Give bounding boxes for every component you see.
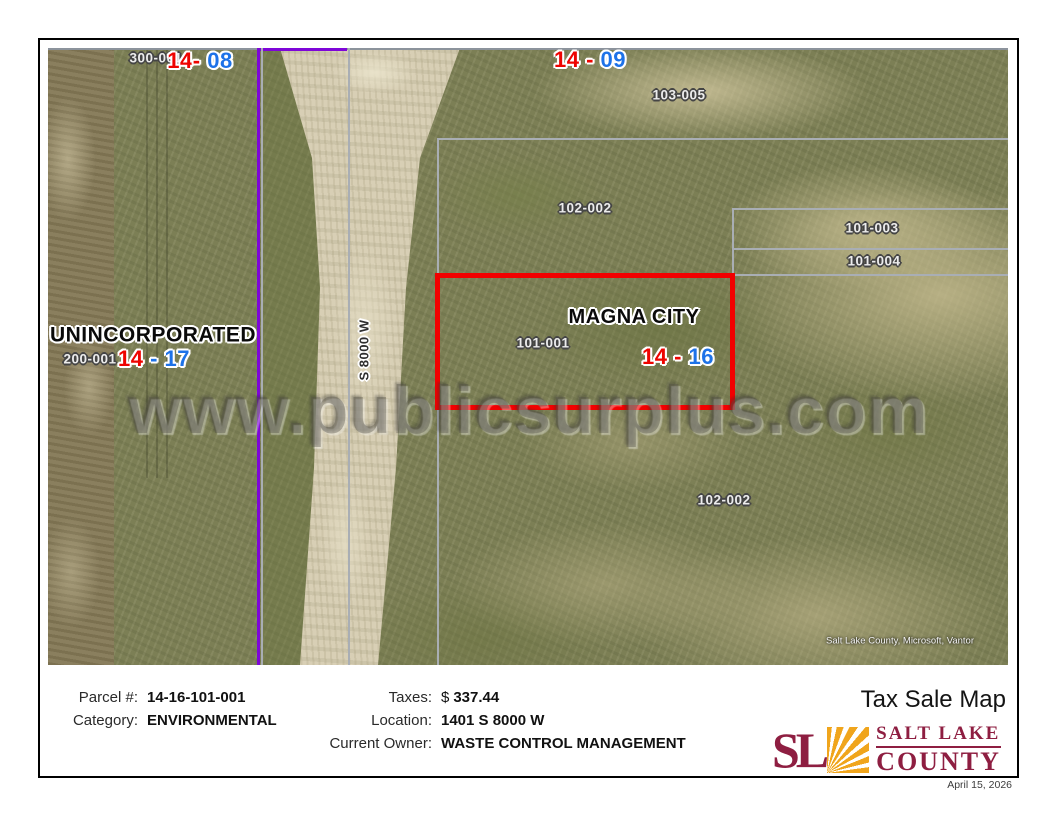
- location-field-value: 1401 S 8000 W: [441, 712, 544, 729]
- location-field: Location: 1401 S 8000 W: [320, 712, 544, 729]
- taxes-field: Taxes: $ 337.44: [320, 689, 499, 706]
- parcel-line: [732, 274, 1008, 276]
- section-dash: -: [193, 48, 201, 73]
- parcel-label: 102-002: [558, 201, 611, 215]
- purple-boundary-line: [257, 48, 260, 665]
- section-number: 17: [165, 346, 190, 371]
- parcel-label: 101-004: [847, 254, 900, 268]
- logo-name-line1: SALT LAKE: [876, 724, 1001, 748]
- category-field-value: ENVIRONMENTAL: [147, 712, 277, 729]
- category-field: Category: ENVIRONMENTAL: [58, 712, 277, 729]
- section-number: 09: [601, 48, 626, 72]
- section-dash: -: [674, 344, 682, 369]
- owner-field-label: Current Owner:: [320, 735, 432, 752]
- print-date: April 15, 2026: [806, 779, 1012, 791]
- section-label: 14 - 09: [554, 49, 626, 71]
- section-number: 14: [554, 48, 579, 72]
- parcel-field-value: 14-16-101-001: [147, 689, 245, 706]
- category-field-label: Category:: [58, 712, 138, 729]
- parcel-line: [261, 48, 263, 665]
- section-label: 14- 08: [167, 50, 232, 72]
- parcel-line: [348, 48, 350, 665]
- taxes-field-value: 337.44: [453, 689, 499, 706]
- parcel-field-label: Parcel #:: [58, 689, 138, 706]
- section-label: 14 - 17: [118, 348, 190, 370]
- aerial-map: 300-001 103-005 102-002 101-003 101-004 …: [48, 48, 1008, 665]
- currency-sign: $: [441, 689, 449, 706]
- parcel-line: [732, 208, 1008, 210]
- parcel-line: [732, 248, 1008, 250]
- owner-field-value: WASTE CONTROL MANAGEMENT: [441, 735, 686, 752]
- section-dash: -: [586, 48, 594, 72]
- section-number: 14: [118, 346, 143, 371]
- section-number: 14: [167, 48, 192, 73]
- parcel-line: [732, 208, 734, 276]
- owner-field: Current Owner: WASTE CONTROL MANAGEMENT: [320, 735, 686, 752]
- section-number: 16: [689, 344, 714, 369]
- unincorporated-area-label: UNINCORPORATED: [50, 325, 256, 346]
- salt-lake-county-logo: SL SALT LAKE COUNTY: [772, 724, 1008, 776]
- logo-monogram: SL: [772, 725, 825, 775]
- parcel-label: 101-001: [516, 336, 569, 350]
- parcel-label: 101-003: [845, 221, 898, 235]
- page-title: Tax Sale Map: [706, 686, 1006, 714]
- logo-wordmark: SALT LAKE COUNTY: [876, 724, 1001, 776]
- section-label: 14 - 16: [642, 346, 714, 368]
- logo-rays-icon: [827, 727, 869, 773]
- magna-city-label: MAGNA CITY: [569, 307, 700, 327]
- section-number: 14: [642, 344, 667, 369]
- section-number: 08: [207, 48, 232, 73]
- location-field-label: Location:: [320, 712, 432, 729]
- purple-boundary-top-segment: [257, 48, 347, 51]
- section-dash: -: [150, 346, 158, 371]
- parcel-label: 102-002: [697, 493, 750, 507]
- imagery-attribution: Salt Lake County, Microsoft, Vantor: [826, 636, 974, 646]
- parcel-field: Parcel #: 14-16-101-001: [58, 689, 245, 706]
- parcel-label: 103-005: [652, 88, 705, 102]
- watermark-text: www.publicsurplus.com: [128, 376, 929, 444]
- taxes-field-label: Taxes:: [320, 689, 432, 706]
- parcel-label: 200-001: [63, 352, 116, 366]
- parcel-line: [437, 138, 1008, 140]
- logo-name-line2: COUNTY: [876, 748, 1001, 777]
